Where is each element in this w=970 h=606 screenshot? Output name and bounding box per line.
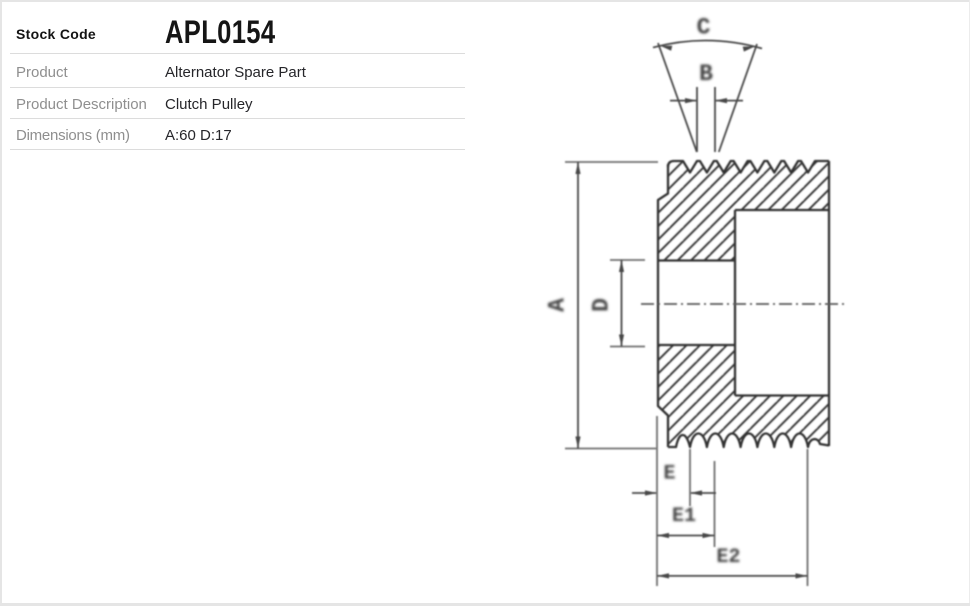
svg-text:D: D	[589, 298, 615, 312]
svg-text:A: A	[545, 298, 571, 312]
svg-text:E2: E2	[716, 546, 740, 569]
svg-text:E: E	[663, 463, 675, 486]
svg-text:E1: E1	[672, 505, 696, 528]
svg-text:B: B	[699, 61, 713, 87]
svg-text:C: C	[697, 15, 711, 41]
